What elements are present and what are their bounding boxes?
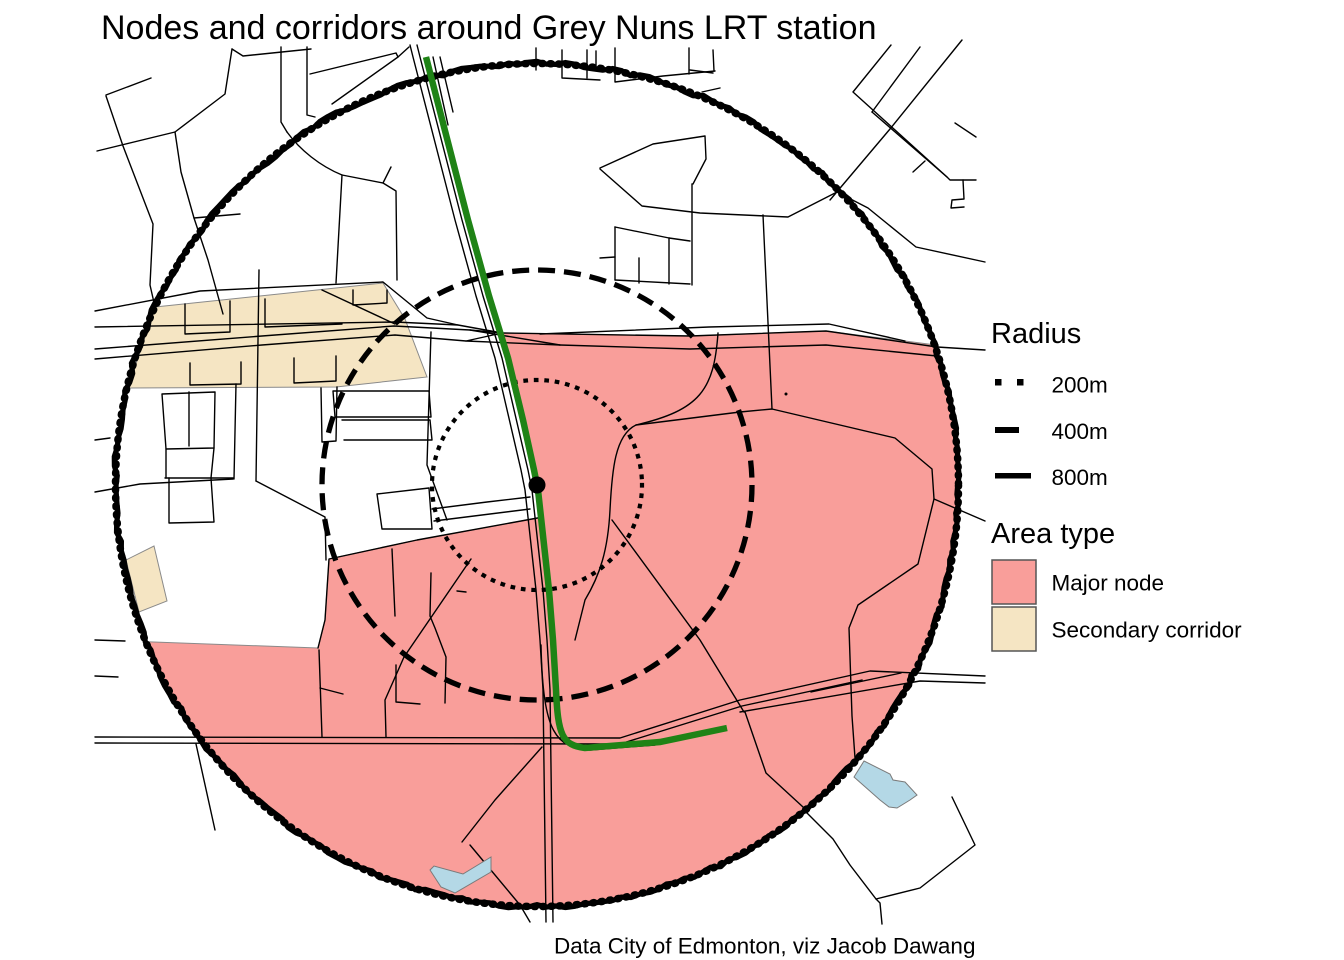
svg-text:200m: 200m xyxy=(1052,372,1108,397)
svg-text:Area type: Area type xyxy=(991,518,1115,550)
svg-text:Nodes and corridors around Gre: Nodes and corridors around Grey Nuns LRT… xyxy=(101,9,876,47)
svg-text:Data City of Edmonton, viz Jac: Data City of Edmonton, viz Jacob Dawang xyxy=(554,934,975,959)
svg-text:Secondary corridor: Secondary corridor xyxy=(1052,618,1243,643)
svg-text:800m: 800m xyxy=(1052,465,1108,490)
svg-text:400m: 400m xyxy=(1052,419,1108,444)
svg-text:Radius: Radius xyxy=(991,318,1081,350)
svg-text:Major node: Major node xyxy=(1052,571,1165,596)
